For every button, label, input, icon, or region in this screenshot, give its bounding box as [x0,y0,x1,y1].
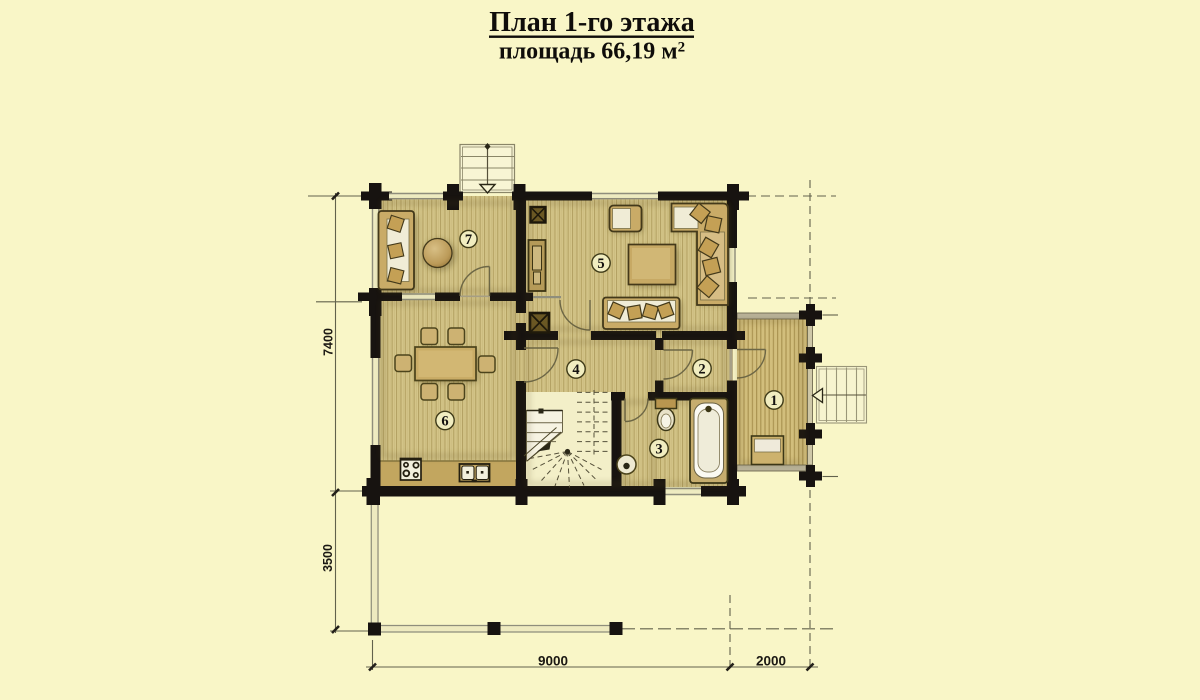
svg-text:площадь 66,19 м2: площадь 66,19 м2 [499,39,685,65]
svg-text:3: 3 [655,442,662,458]
svg-text:1: 1 [770,393,777,409]
svg-text:9000: 9000 [538,654,568,669]
svg-text:2000: 2000 [756,654,786,669]
svg-text:3500: 3500 [321,544,335,572]
svg-text:7: 7 [465,232,472,248]
svg-text:2: 2 [698,362,705,378]
svg-text:5: 5 [597,256,604,272]
svg-text:План 1-го этажа: План 1-го этажа [489,7,694,38]
svg-text:7400: 7400 [322,328,336,356]
svg-text:4: 4 [572,362,579,378]
svg-text:6: 6 [441,414,448,430]
